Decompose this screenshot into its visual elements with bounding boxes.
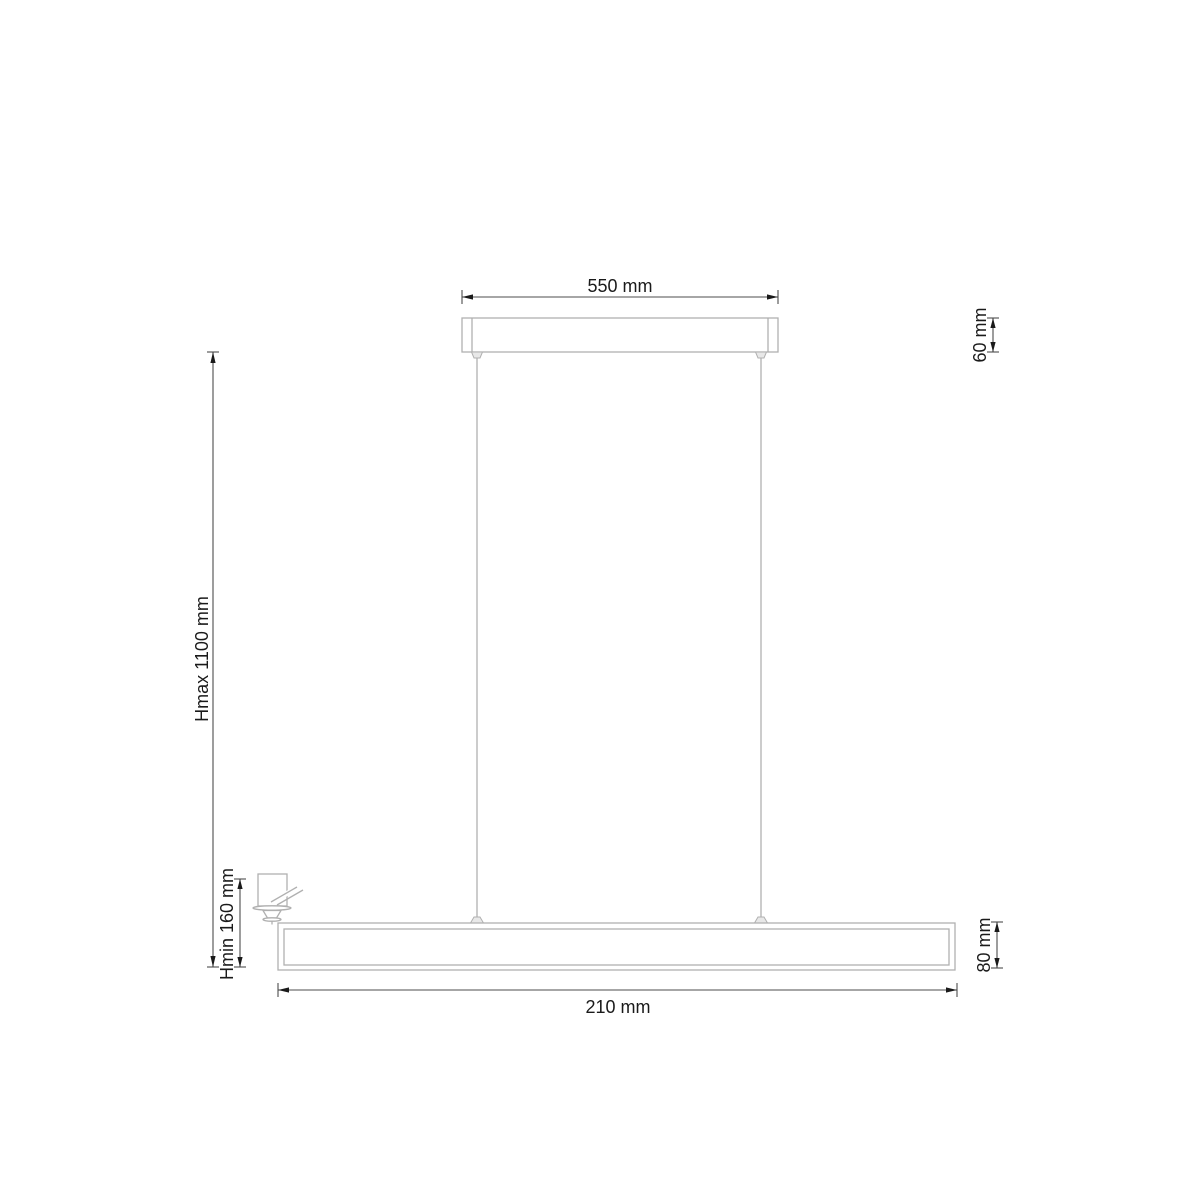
wire-connector-body-right xyxy=(755,917,768,923)
cable-adjuster-icon xyxy=(253,874,303,925)
dim-arrow-up xyxy=(990,318,995,328)
wire-connector-body-left xyxy=(471,917,484,923)
dim-arrow-down xyxy=(237,957,242,967)
dim-height-min-label: Hmin 160 mm xyxy=(217,868,237,980)
canopy-outline xyxy=(462,318,778,352)
lamp-body-outline xyxy=(278,923,955,970)
adjuster-base xyxy=(263,918,281,921)
dim-height-max-label: Hmax 1100 mm xyxy=(192,596,212,722)
dim-canopy-height-label: 60 mm xyxy=(970,307,990,362)
dim-arrow-down xyxy=(210,956,215,967)
dim-arrow-up xyxy=(210,352,215,363)
dim-height-min: Hmin 160 mm xyxy=(217,868,246,980)
canopy xyxy=(462,318,778,352)
lamp-body-inner-outline xyxy=(284,929,949,965)
technical-drawing-canvas: 550 mm 60 mm Hmax 1100 mm Hmi xyxy=(0,0,1200,1200)
dim-arrow-up xyxy=(237,879,242,889)
adjuster-flange xyxy=(253,906,291,910)
dim-arrow-left xyxy=(462,294,473,299)
wire-connector-canopy-left xyxy=(472,352,483,358)
suspension xyxy=(471,352,768,923)
pendant-lamp-dimension-drawing: 550 mm 60 mm Hmax 1100 mm Hmi xyxy=(0,0,1200,1200)
dim-arrow-down xyxy=(994,958,999,968)
dim-fixture-length-label: 210 mm xyxy=(585,997,650,1017)
dim-fixture-length: 210 mm xyxy=(278,983,957,1017)
wire-connector-canopy-right xyxy=(756,352,767,358)
dim-canopy-width-label: 550 mm xyxy=(587,276,652,296)
dim-arrow-right xyxy=(767,294,778,299)
dim-canopy-height: 60 mm xyxy=(970,307,999,362)
dim-fixture-height-label: 80 mm xyxy=(974,917,994,972)
adjuster-stem xyxy=(263,911,281,919)
dim-arrow-left xyxy=(278,987,289,992)
dim-canopy-width: 550 mm xyxy=(462,276,778,304)
dim-arrow-up xyxy=(994,922,999,932)
dim-height-max: Hmax 1100 mm xyxy=(192,352,219,967)
dim-arrow-down xyxy=(990,342,995,352)
dim-fixture-height: 80 mm xyxy=(974,917,1003,972)
dim-arrow-right xyxy=(946,987,957,992)
lamp-body xyxy=(278,923,955,970)
